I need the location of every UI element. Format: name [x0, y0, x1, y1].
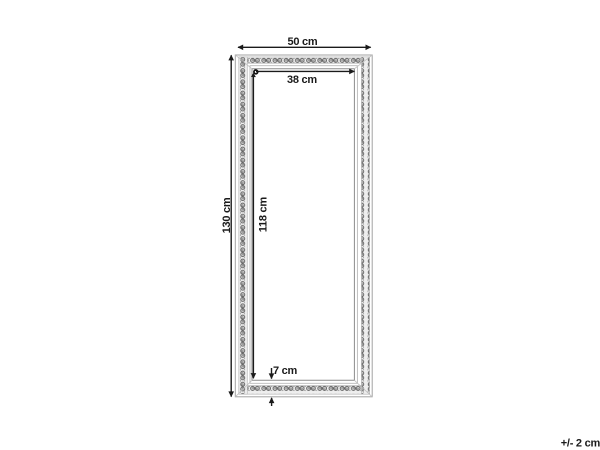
- svg-text:38 cm: 38 cm: [287, 74, 317, 86]
- svg-text:118 cm: 118 cm: [257, 197, 269, 233]
- svg-text:7 cm: 7 cm: [273, 365, 298, 377]
- svg-text:130 cm: 130 cm: [221, 197, 233, 233]
- svg-text:+/- 2 cm: +/- 2 cm: [561, 437, 600, 449]
- svg-text:50 cm: 50 cm: [288, 36, 318, 48]
